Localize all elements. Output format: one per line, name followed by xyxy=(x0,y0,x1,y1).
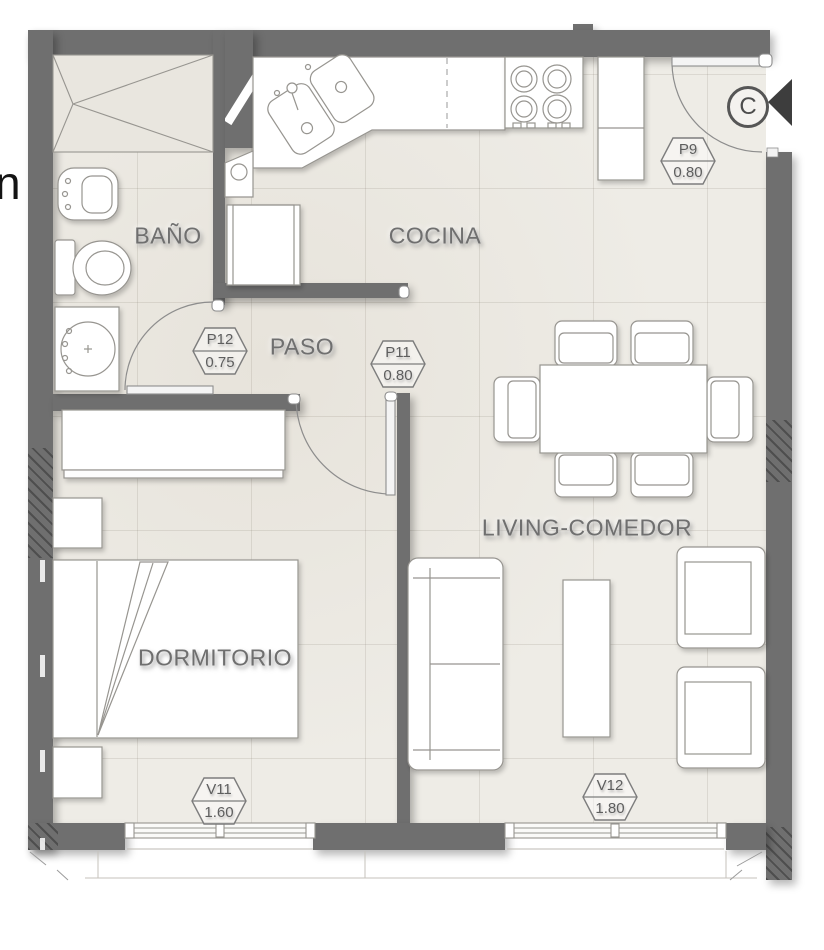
toilet xyxy=(55,240,131,295)
coffee-table xyxy=(563,580,610,737)
kitchen-low-cabinet xyxy=(225,151,253,197)
nightstand xyxy=(53,747,102,798)
sofa xyxy=(408,558,503,770)
wall-notch xyxy=(767,148,778,157)
room-label-cocina: COCINA xyxy=(389,223,481,250)
door-tag-p11: P11 0.80 xyxy=(370,339,426,389)
room-label-living: LIVING-COMEDOR xyxy=(482,515,692,542)
floor-plan: n xyxy=(0,0,824,950)
closet xyxy=(62,410,285,478)
room-label-bano: BAÑO xyxy=(134,223,201,250)
entry-tall-cabinet xyxy=(598,57,644,180)
bathroom-vanity-sink xyxy=(55,307,119,391)
nightstand xyxy=(53,498,102,548)
window-tag-v12: V12 1.80 xyxy=(582,772,638,822)
balcony-lines xyxy=(30,851,762,880)
bidet xyxy=(58,168,118,220)
section-marker-c: C xyxy=(727,86,769,128)
door-p12-leaf xyxy=(127,386,213,394)
shower xyxy=(53,55,213,152)
dining-set xyxy=(494,321,753,497)
door-tag-p9: P9 0.80 xyxy=(660,136,716,186)
wall-end-cap xyxy=(399,286,409,298)
door-tag-p12: P12 0.75 xyxy=(192,326,248,376)
fridge xyxy=(227,205,300,285)
dining-table xyxy=(540,365,707,453)
stove xyxy=(505,57,583,128)
window-tag-v11: V11 1.60 xyxy=(191,776,247,826)
door-p9-leaf xyxy=(672,57,762,66)
room-label-dormitorio: DORMITORIO xyxy=(138,645,292,672)
window-v11 xyxy=(125,823,315,849)
armchair xyxy=(677,547,765,648)
door-p11-leaf xyxy=(386,399,395,495)
armchair xyxy=(677,667,765,768)
section-arrow xyxy=(768,79,792,126)
door-p11 xyxy=(288,392,397,495)
room-label-paso: PASO xyxy=(270,334,334,361)
window-v12 xyxy=(505,823,726,849)
